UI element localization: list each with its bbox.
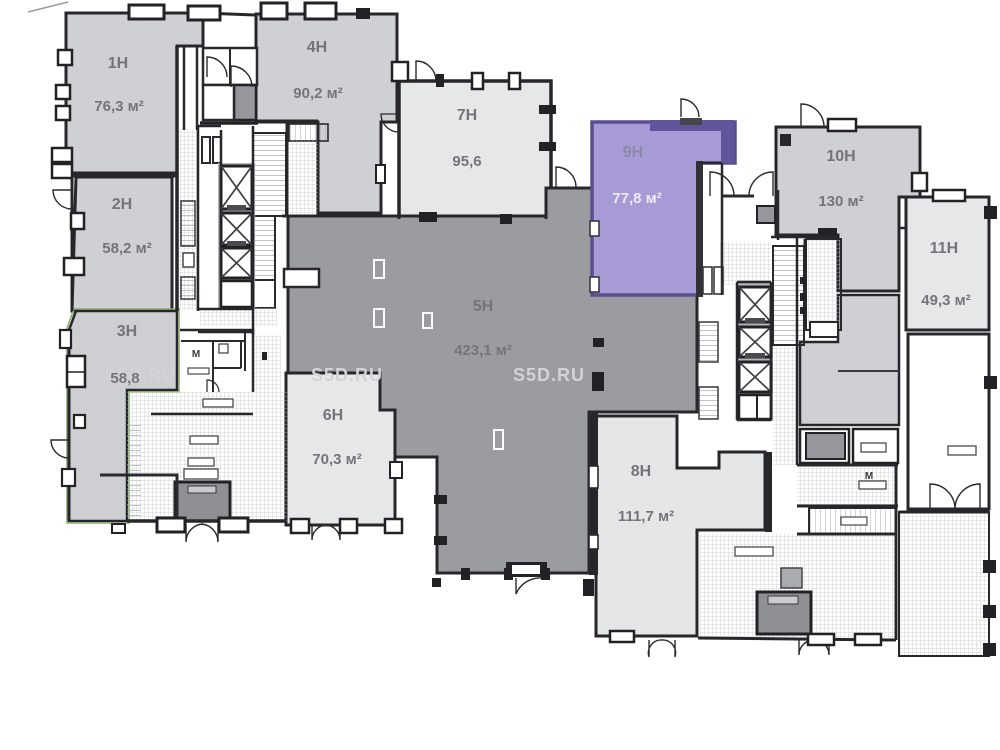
svg-text:4Н: 4Н bbox=[307, 39, 327, 56]
svg-text:М: М bbox=[192, 349, 200, 360]
svg-text:11Н: 11Н bbox=[930, 240, 958, 257]
svg-text:7Н: 7Н bbox=[457, 107, 477, 124]
svg-text:49,3 м²: 49,3 м² bbox=[921, 292, 970, 309]
svg-text:2Н: 2Н bbox=[112, 196, 132, 213]
svg-text:6Н: 6Н bbox=[323, 407, 343, 424]
svg-text:76,3 м²: 76,3 м² bbox=[94, 98, 143, 115]
svg-text:S5D.RU: S5D.RU bbox=[513, 365, 585, 385]
svg-text:9Н: 9Н bbox=[623, 144, 643, 161]
svg-text:70,3 м²: 70,3 м² bbox=[312, 451, 361, 468]
svg-text:5Н: 5Н bbox=[473, 298, 493, 315]
svg-text:423,1 м²: 423,1 м² bbox=[454, 342, 512, 359]
svg-text:S5D.RU: S5D.RU bbox=[311, 365, 383, 385]
svg-text:1Н: 1Н bbox=[108, 55, 128, 72]
svg-text:58,8: 58,8 bbox=[110, 370, 139, 387]
svg-text:130 м²: 130 м² bbox=[818, 193, 863, 210]
svg-text:3Н: 3Н bbox=[117, 323, 137, 340]
svg-text:8Н: 8Н bbox=[631, 463, 651, 480]
svg-text:М: М bbox=[865, 471, 873, 482]
svg-text:95,6: 95,6 bbox=[452, 153, 481, 170]
svg-text:90,2 м²: 90,2 м² bbox=[293, 85, 342, 102]
svg-text:77,8 м²: 77,8 м² bbox=[612, 190, 661, 207]
svg-text:58,2 м²: 58,2 м² bbox=[102, 240, 151, 257]
svg-text:111,7 м²: 111,7 м² bbox=[618, 508, 674, 525]
svg-text:10Н: 10Н bbox=[826, 148, 855, 165]
